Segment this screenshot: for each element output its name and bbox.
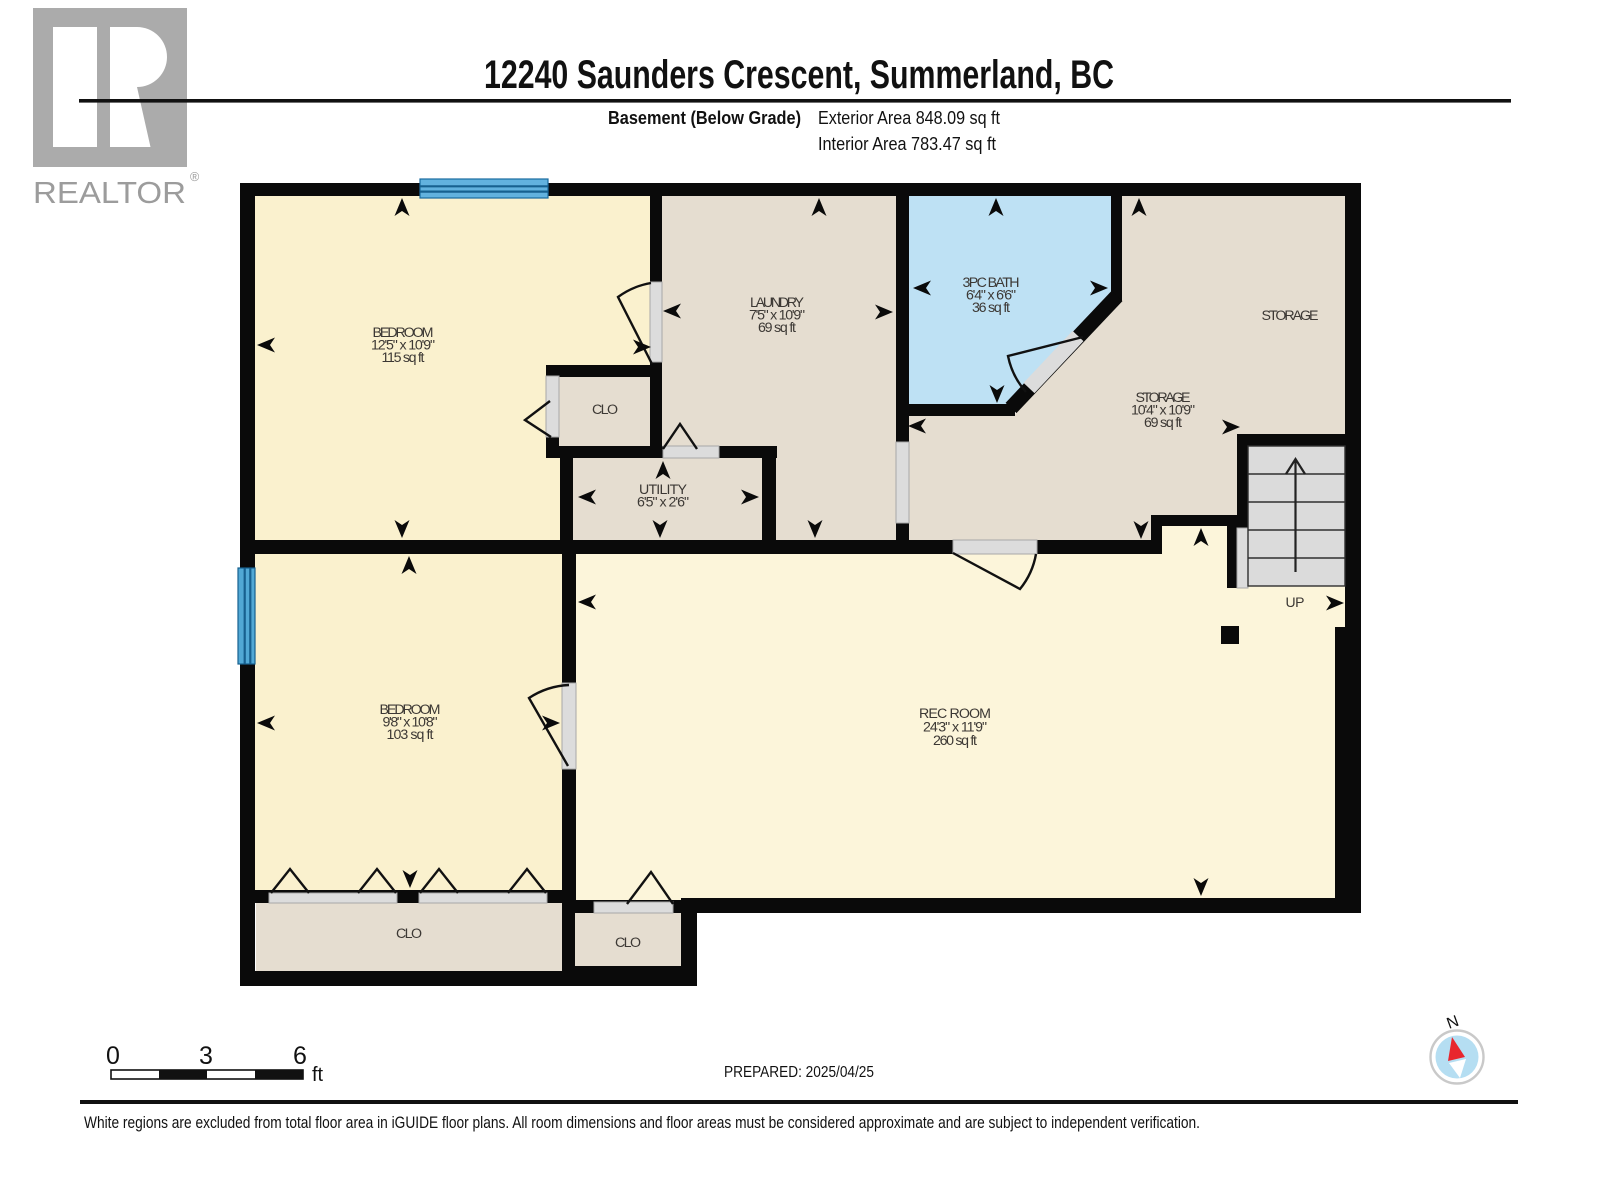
svg-text:0: 0 xyxy=(106,1042,120,1070)
svg-text:Interior Area 783.47 sq ft: Interior Area 783.47 sq ft xyxy=(818,134,996,154)
svg-text:69 sq ft: 69 sq ft xyxy=(758,320,796,336)
svg-text:260 sq ft: 260 sq ft xyxy=(933,733,977,749)
svg-text:White regions are excluded fro: White regions are excluded from total fl… xyxy=(84,1113,1200,1132)
svg-text:6'5" x 2'6": 6'5" x 2'6" xyxy=(637,495,689,511)
svg-text:Basement (Below Grade): Basement (Below Grade) xyxy=(608,108,801,128)
svg-text:CLO: CLO xyxy=(615,935,641,951)
svg-text:103 sq ft: 103 sq ft xyxy=(387,727,434,743)
svg-text:Exterior Area 848.09 sq ft: Exterior Area 848.09 sq ft xyxy=(818,108,1000,128)
svg-text:ft: ft xyxy=(312,1064,324,1086)
svg-text:CLO: CLO xyxy=(396,926,422,942)
svg-text:36 sq ft: 36 sq ft xyxy=(972,300,1010,316)
svg-text:115 sq ft: 115 sq ft xyxy=(382,350,425,366)
svg-text:6: 6 xyxy=(293,1042,307,1070)
svg-text:REALTOR: REALTOR xyxy=(33,175,186,210)
svg-text:12240 Saunders Crescent, Summe: 12240 Saunders Crescent, Summerland, BC xyxy=(484,53,1114,97)
svg-text:STORAGE: STORAGE xyxy=(1262,308,1319,324)
svg-text:3: 3 xyxy=(199,1042,213,1070)
svg-text:69 sq ft: 69 sq ft xyxy=(1144,415,1182,431)
svg-text:®: ® xyxy=(190,170,200,184)
svg-text:UP: UP xyxy=(1286,594,1305,610)
svg-text:CLO: CLO xyxy=(592,402,618,418)
svg-text:PREPARED: 2025/04/25: PREPARED: 2025/04/25 xyxy=(724,1064,874,1081)
